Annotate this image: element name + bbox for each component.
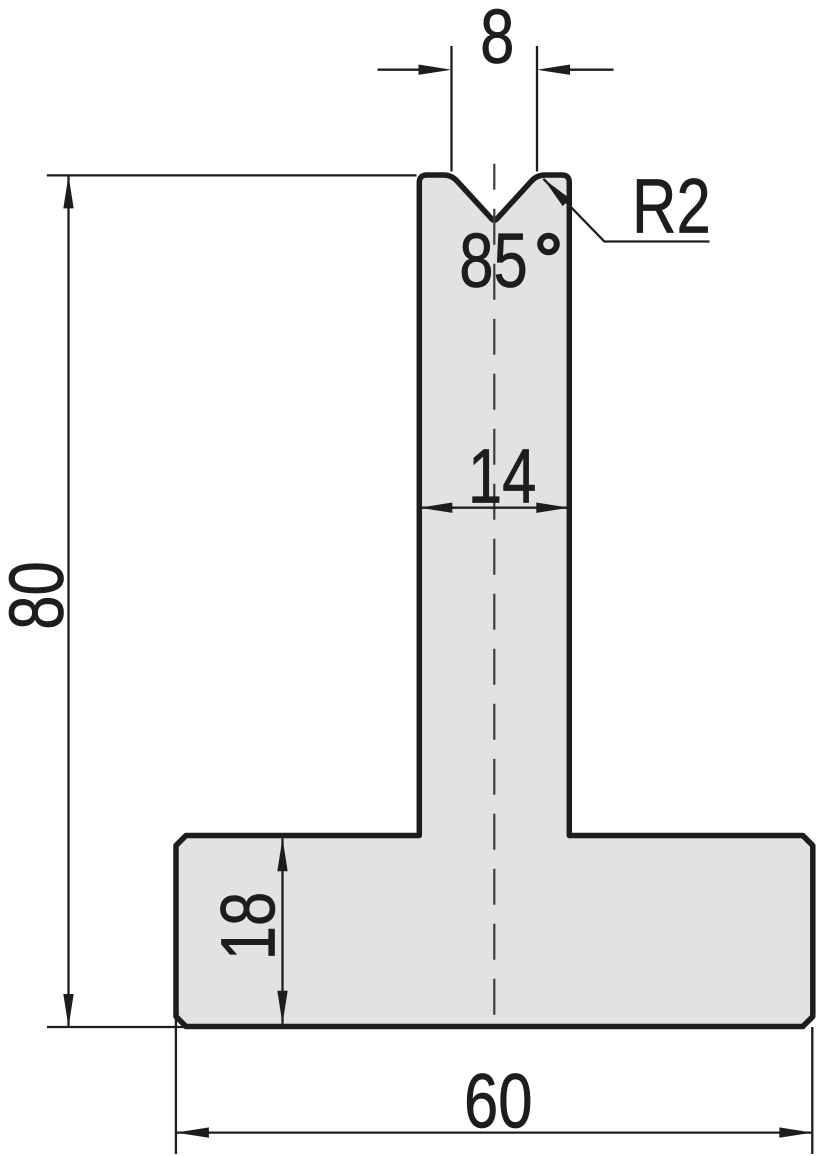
svg-text:R2: R2 xyxy=(632,163,711,249)
svg-text:8: 8 xyxy=(480,0,514,80)
svg-text:60: 60 xyxy=(464,1058,533,1144)
svg-text:18: 18 xyxy=(205,892,291,961)
svg-text:80: 80 xyxy=(0,561,80,630)
svg-text:85: 85 xyxy=(459,217,528,303)
svg-text:14: 14 xyxy=(468,433,537,519)
